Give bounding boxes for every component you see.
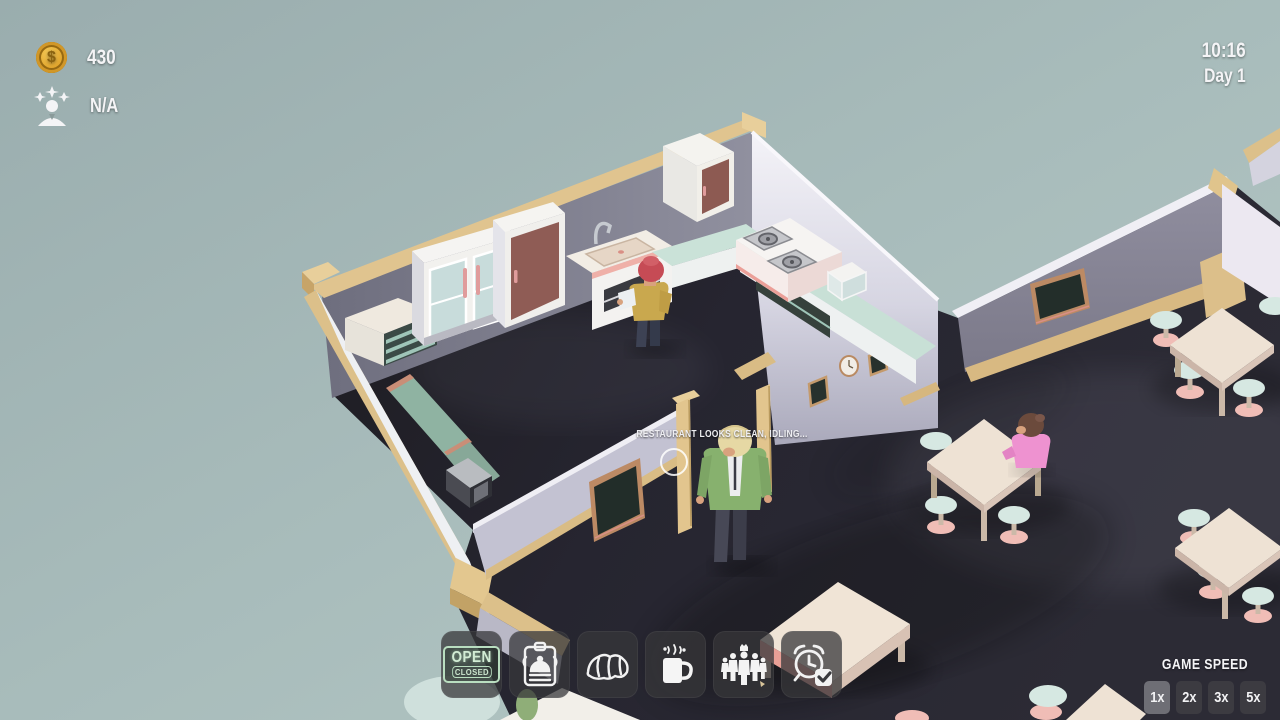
wall-clock <box>840 356 858 376</box>
game-screen: $ 430 N/A 10:16 Day 1 RESTAURANT LOOKS C… <box>0 0 1280 720</box>
coin-icon: $ <box>36 42 67 73</box>
service-bell-button[interactable] <box>509 631 570 698</box>
speed-3x-button[interactable]: 3x <box>1208 681 1234 714</box>
staff-group-icon <box>720 641 768 689</box>
game-speed-controls: 1x 2x 3x 5x <box>1144 681 1266 714</box>
schedule-button[interactable] <box>781 631 842 698</box>
open-closed-sign-icon: OPEN CLOSED <box>443 646 500 683</box>
person-stars-icon <box>30 84 74 128</box>
money-value: 430 <box>87 46 116 70</box>
service-bell-icon <box>517 641 563 689</box>
speed-2x-button[interactable]: 2x <box>1176 681 1202 714</box>
closed-label: CLOSED <box>452 666 491 678</box>
open-label: OPEN <box>451 650 491 665</box>
day-counter: Day 1 <box>1195 66 1246 88</box>
food-menu-button[interactable] <box>577 631 638 698</box>
game-world[interactable] <box>0 0 1280 720</box>
speed-1x-button[interactable]: 1x <box>1144 681 1170 714</box>
rating-display: N/A <box>30 84 124 128</box>
alarm-clock-check-icon <box>787 641 837 689</box>
money-display: $ 430 <box>36 42 122 73</box>
open-closed-button[interactable]: OPEN CLOSED <box>441 631 502 698</box>
rating-value: N/A <box>90 95 118 118</box>
drinks-menu-button[interactable] <box>645 631 706 698</box>
clock-time: 10:16 <box>1192 39 1246 63</box>
speed-5x-button[interactable]: 5x <box>1240 681 1266 714</box>
tall-cabinet[interactable] <box>493 202 565 328</box>
status-message: RESTAURANT LOOKS CLEAN, IDLING... <box>636 429 807 440</box>
croissant-icon <box>583 643 633 687</box>
bottom-toolbar: OPEN CLOSED <box>441 631 842 698</box>
staff-button[interactable] <box>713 631 774 698</box>
mug-icon <box>653 641 699 689</box>
game-speed-label: GAME SPEED <box>1143 656 1248 673</box>
dollar-icon: $ <box>47 49 56 67</box>
